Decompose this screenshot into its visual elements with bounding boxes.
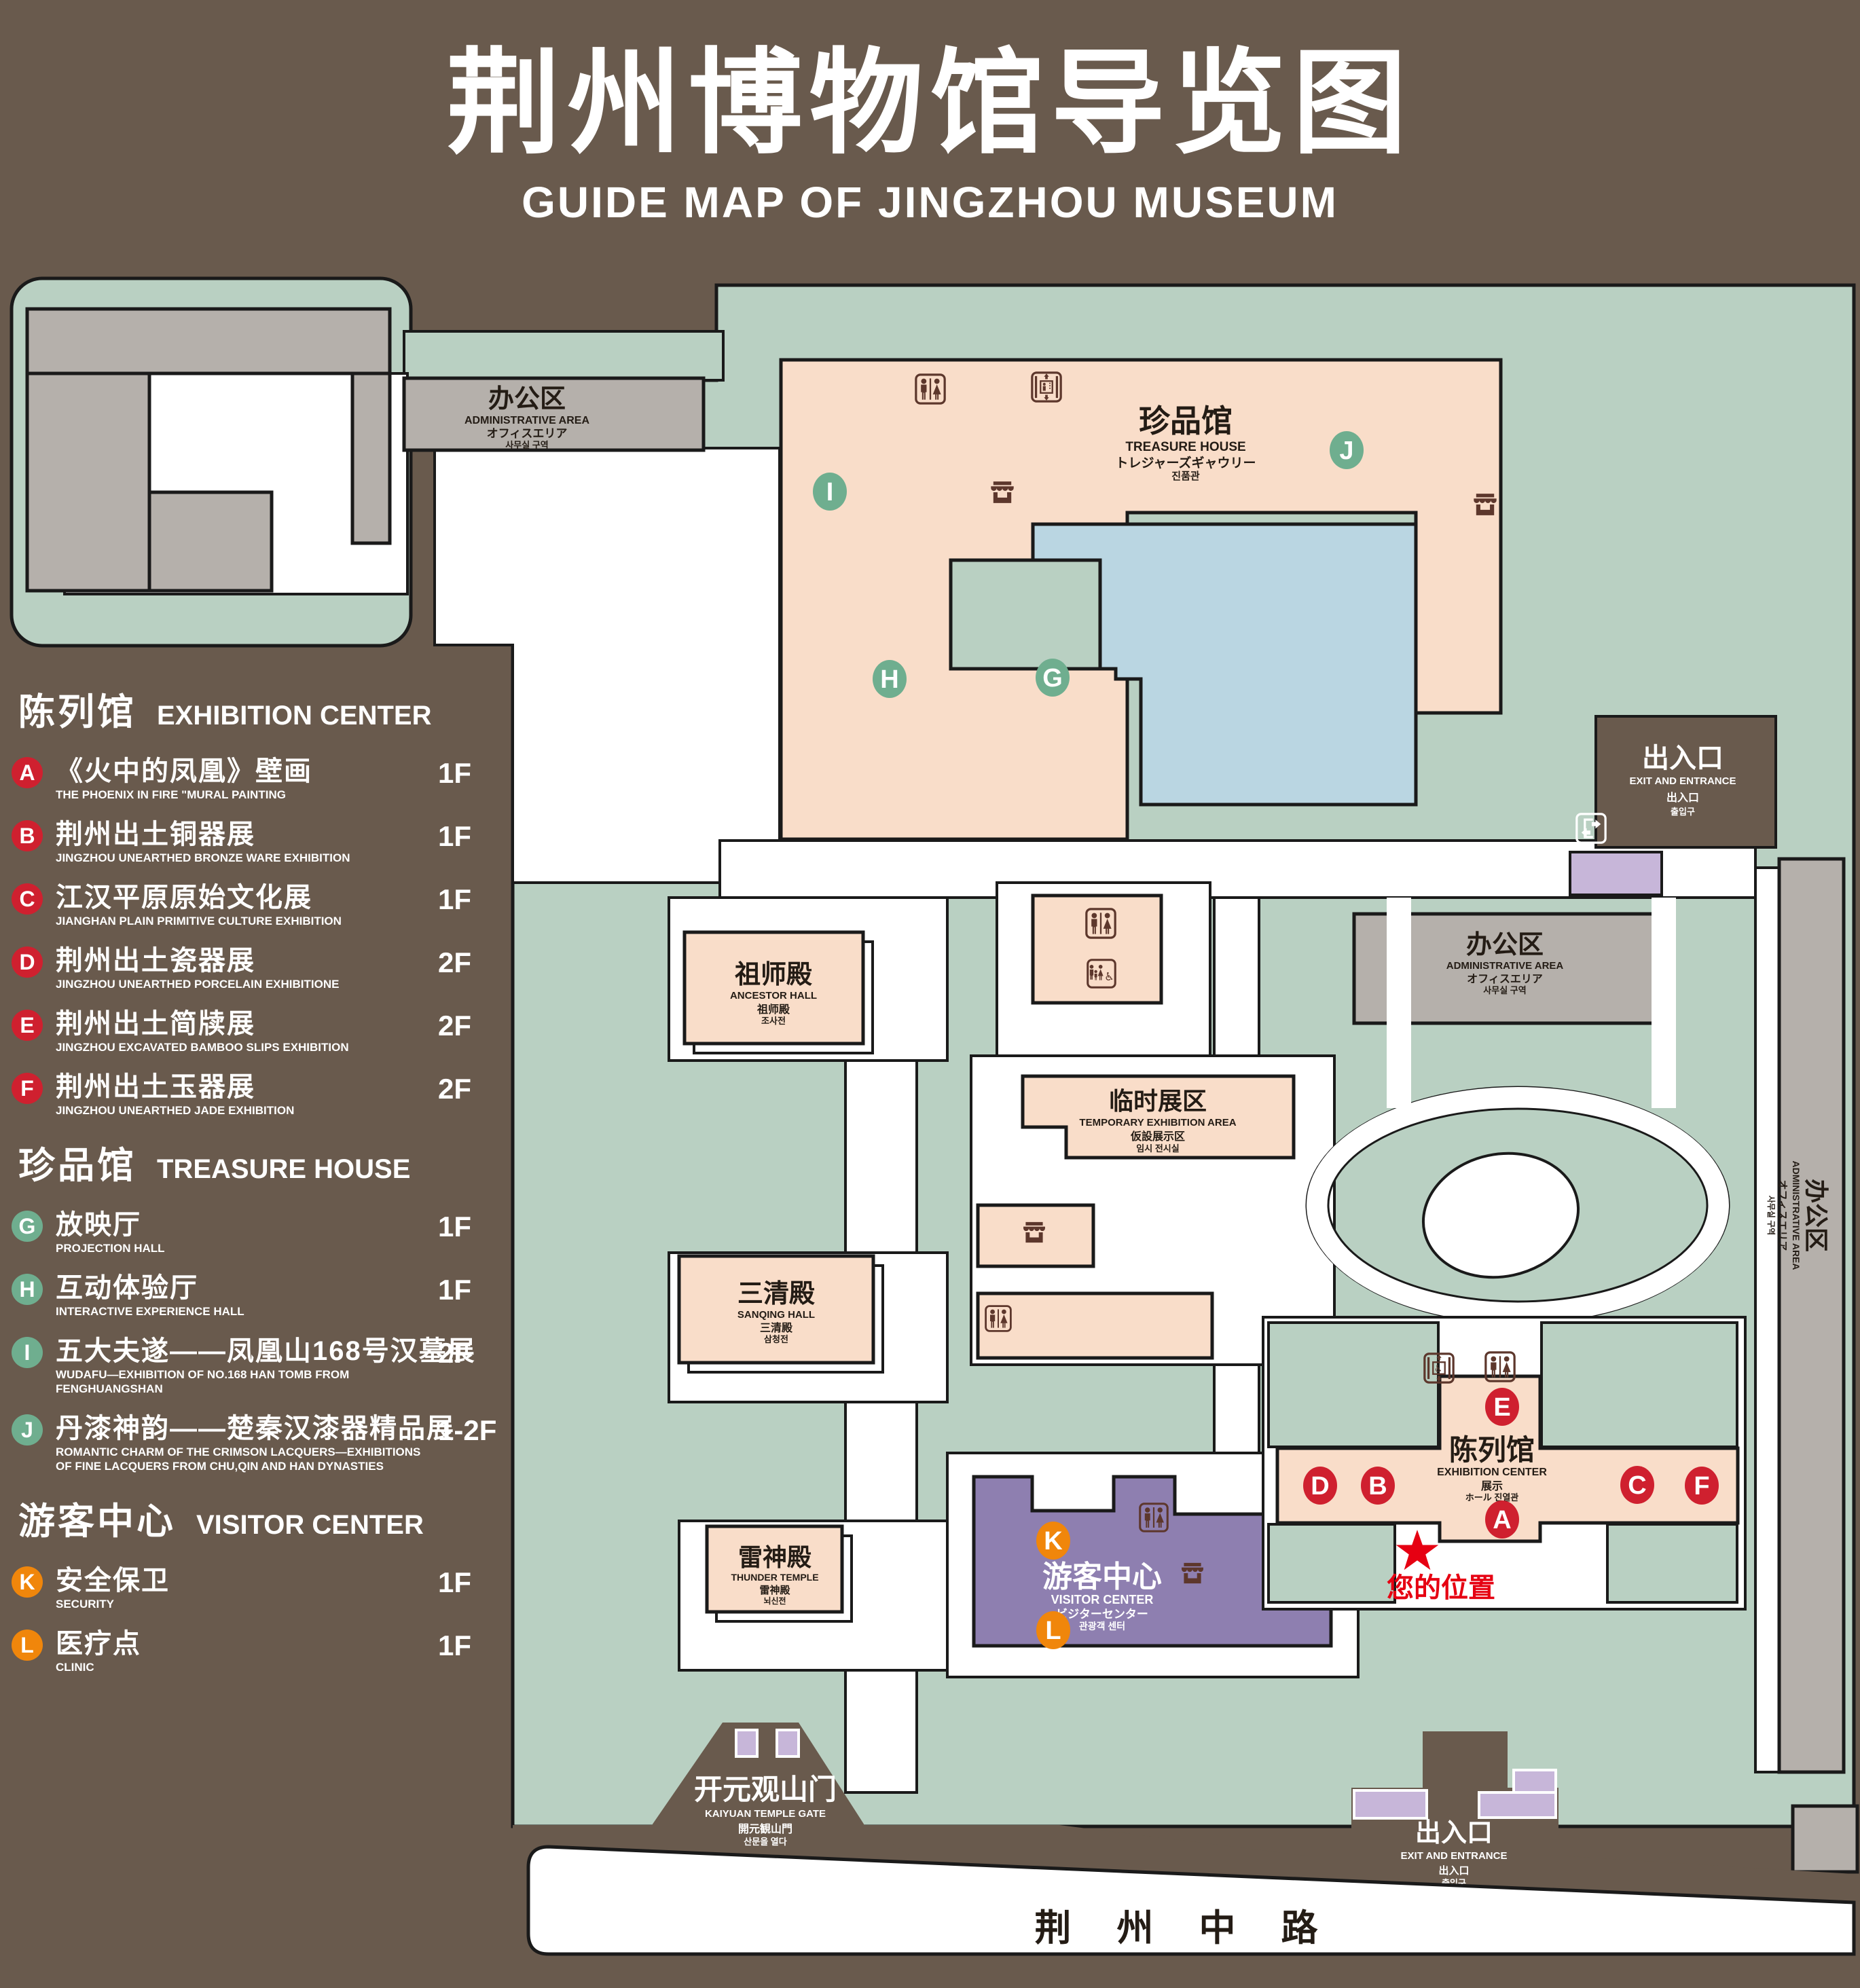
exhibition-label-en: EXHIBITION CENTER (1437, 1467, 1547, 1478)
your-location-label: 您的位置 (1387, 1573, 1495, 1603)
item-title-en: JINGZHOU EXCAVATED BAMBOO SLIPS EXHIBITI… (56, 1040, 422, 1054)
legend-item-A: A《火中的凤凰》壁画THE PHOENIX IN FIRE "MURAL PAI… (0, 756, 508, 802)
treasure-house-label-kr: 진품관 (1171, 471, 1200, 482)
item-floor: 1F (438, 1211, 471, 1243)
item-title-en: INTERACTIVE EXPERIENCE HALL (56, 1304, 422, 1319)
item-title-en: JINGZHOU UNEARTHED JADE EXHIBITION (56, 1103, 422, 1118)
map-marker-E: E (1485, 1388, 1519, 1426)
svg-text:D: D (1311, 1472, 1329, 1501)
sanqing-label-en: SANQING HALL (737, 1309, 815, 1321)
ancestor-hall-label-kr: 조사전 (761, 1016, 786, 1026)
temporary-exhibition-label-kr: 임시 전시실 (1136, 1143, 1179, 1154)
east-exit-label-jp: 出入口 (1666, 791, 1699, 804)
legend-item-C: C江汉平原原始文化展JIANGHAN PLAIN PRIMITIVE CULTU… (0, 882, 508, 928)
ancestor-hall-label-cn: 祖师殿 (735, 961, 812, 989)
item-badge-G: G (12, 1211, 43, 1242)
legend-section: 陈列馆EXHIBITION CENTERA《火中的凤凰》壁画THE PHOENI… (0, 682, 508, 1118)
item-floor: 1F (438, 1630, 471, 1662)
item-badge-H: H (12, 1274, 43, 1305)
map-marker-K: K (1036, 1522, 1070, 1560)
legend-item-J: J丹漆神韵——楚秦汉漆器精品展ROMANTIC CHARM OF THE CRI… (0, 1413, 508, 1473)
nw-admin-inner-wing (352, 373, 390, 543)
poster-title-en: GUIDE MAP OF JINGZHOU MUSEUM (0, 177, 1860, 227)
svg-text:C: C (1628, 1471, 1646, 1500)
item-title-en: THE PHOENIX IN FIRE "MURAL PAINTING (56, 788, 422, 802)
temporary-exhibition-label-en: TEMPORARY EXHIBITION AREA (1079, 1117, 1236, 1128)
mid-admin-label-cn: 办公区 (1466, 931, 1544, 959)
south-exit-label-en: EXIT AND ENTRANCE (1401, 1850, 1508, 1862)
legend-section: 珍品馆TREASURE HOUSEG放映厅PROJECTION HALL1FH互… (0, 1135, 508, 1473)
item-floor: 1F (438, 883, 471, 916)
pond-platform (951, 560, 1100, 669)
nw-admin-label-jp: オフィスエリア (487, 427, 568, 440)
legend-item-F: F荆州出土玉器展JINGZHOU UNEARTHED JADE EXHIBITI… (0, 1071, 508, 1118)
sanqing-label-jp: 三清殿 (760, 1322, 793, 1334)
thunder-label-en: THUNDER TEMPLE (731, 1572, 818, 1583)
item-floor: 1F (438, 1274, 471, 1306)
temporary-exhibition-label-cn: 临时展区 (1109, 1087, 1207, 1115)
svg-text:L: L (1045, 1617, 1061, 1645)
east-admin-label-en: ADMINISTRATIVE AREA (1791, 1161, 1802, 1270)
mid-admin-label-kr: 사무실 구역 (1483, 985, 1526, 995)
map-marker-H: H (873, 660, 907, 698)
item-floor: 2F (438, 1337, 471, 1369)
poster-header: 荆州博物馆导览图 GUIDE MAP OF JINGZHOU MUSEUM (0, 0, 1860, 227)
lower-annex-building (978, 1293, 1212, 1358)
section-title-en: TREASURE HOUSE (157, 1154, 410, 1185)
exhibition-notch-nw (1269, 1323, 1438, 1447)
treasure-house-label-en: TREASURE HOUSE (1125, 440, 1245, 454)
item-badge-A: A (12, 757, 43, 788)
poster-title-cn: 荆州博物馆导览图 (0, 11, 1860, 176)
section-title-cn: 陈列馆 (18, 682, 136, 735)
kaiyuan-gate-block-east (777, 1730, 799, 1756)
item-title-en: JINGZHOU UNEARTHED BRONZE WARE EXHIBITIO… (56, 851, 422, 865)
legend-item-K: K安全保卫SECURITY1F (0, 1565, 508, 1611)
item-title-en: PROJECTION HALL (56, 1241, 422, 1255)
svg-text:J: J (1339, 437, 1353, 465)
item-floor: 2F (438, 946, 471, 979)
garden-stub-east (1652, 898, 1676, 1108)
legend-section: 游客中心VISITOR CENTERK安全保卫SECURITY1FL医疗点CLI… (0, 1491, 508, 1674)
garden-stub-west (1387, 898, 1411, 1108)
exhibition-label-jp: 展示 (1481, 1480, 1503, 1492)
kaiyuan-gate-label-en: KAIYUAN TEMPLE GATE (705, 1808, 826, 1820)
item-title-en: CLINIC (56, 1660, 422, 1674)
svg-text:F: F (1694, 1472, 1709, 1501)
exhibition-notch-sw (1269, 1524, 1395, 1602)
svg-text:K: K (1044, 1527, 1063, 1556)
item-badge-J: J (12, 1414, 43, 1446)
legend-item-I: I五大夫遂——凤凰山168号汉墓展WUDAFU—EXHIBITION OF NO… (0, 1336, 508, 1396)
south-exit-label-cn: 出入口 (1415, 1819, 1493, 1847)
kaiyuan-gate-label-cn: 开元观山门 (694, 1773, 837, 1805)
east-exit-label-kr: 출입구 (1671, 807, 1695, 817)
treasure-house-label-cn: 珍品馆 (1139, 403, 1233, 439)
map-marker-D: D (1303, 1467, 1337, 1505)
item-title-en: JINGZHOU UNEARTHED PORCELAIN EXHIBITIONE (56, 977, 422, 991)
item-badge-F: F (12, 1073, 43, 1104)
east-exit-label-cn: 出入口 (1642, 743, 1724, 773)
east-side-path (1755, 868, 1779, 1772)
section-header: 珍品馆TREASURE HOUSE (18, 1135, 508, 1189)
east-exit-gatehouse (1570, 852, 1662, 895)
item-badge-E: E (12, 1010, 43, 1041)
item-floor: 2F (438, 1073, 471, 1105)
map-marker-L: L (1036, 1611, 1070, 1649)
item-floor: 1F (438, 820, 471, 853)
south-exit-area-upper (1423, 1731, 1508, 1792)
axis-path-1 (845, 1061, 917, 1253)
map-marker-B: B (1361, 1467, 1395, 1505)
exhibition-notch-se (1607, 1524, 1737, 1602)
item-badge-K: K (12, 1566, 43, 1598)
svg-text:B: B (1368, 1472, 1387, 1501)
sanqing-label-cn: 三清殿 (737, 1280, 815, 1308)
item-title-en: ROMANTIC CHARM OF THE CRIMSON LACQUERS—E… (56, 1445, 422, 1473)
south-exit-block-small (1514, 1770, 1556, 1792)
temporary-exhibition-label-jp: 仮設展示区 (1130, 1130, 1185, 1143)
svg-text:A: A (1493, 1506, 1511, 1534)
thunder-label-cn: 雷神殿 (738, 1543, 812, 1571)
axis-path-3 (845, 1670, 917, 1792)
south-exit-block-west (1354, 1790, 1427, 1818)
nw-admin-bottom-arm (149, 492, 272, 591)
grounds-connector (404, 331, 723, 380)
item-title-en: WUDAFU—EXHIBITION OF NO.168 HAN TOMB FRO… (56, 1367, 422, 1396)
visitor-center-label-en: VISITOR CENTER (1051, 1593, 1154, 1606)
east-admin-label-cn: 办公区 (1802, 1179, 1830, 1252)
nw-admin-label-cn: 办公区 (488, 385, 566, 413)
east-admin-label-kr: 사무실 구역 (1766, 1196, 1776, 1236)
kaiyuan-gate-block-west (736, 1730, 757, 1756)
mid-admin-label-jp: オフィスエリア (1467, 973, 1543, 985)
svg-text:H: H (880, 665, 898, 694)
item-title-en: SECURITY (56, 1597, 422, 1611)
svg-text:E: E (1493, 1393, 1510, 1422)
svg-text:G: G (1042, 664, 1063, 693)
section-title-en: EXHIBITION CENTER (157, 701, 431, 731)
legend-item-H: H互动体验厅INTERACTIVE EXPERIENCE HALL1F (0, 1272, 508, 1319)
map-marker-G: G (1036, 659, 1070, 697)
item-badge-D: D (12, 946, 43, 978)
accessible-elevator-icon (1425, 1354, 1453, 1382)
item-floor: 1F (438, 757, 471, 790)
map-marker-J: J (1330, 431, 1364, 469)
item-badge-I: I (12, 1337, 43, 1368)
east-admin-label-jp: オフィスエリア (1776, 1180, 1788, 1251)
item-title-en: JIANGHAN PLAIN PRIMITIVE CULTURE EXHIBIT… (56, 914, 422, 928)
south-exit-label-jp: 出入口 (1438, 1864, 1469, 1877)
sidebar-sections: 陈列馆EXHIBITION CENTERA《火中的凤凰》壁画THE PHOENI… (0, 682, 508, 1674)
road-label: 荆 州 中 路 (1034, 1908, 1335, 1949)
nw-admin-left-wing (27, 373, 149, 591)
legend-item-B: B荆州出土铜器展JINGZHOU UNEARTHED BRONZE WARE E… (0, 819, 508, 865)
legend-item-D: D荆州出土瓷器展JINGZHOU UNEARTHED PORCELAIN EXH… (0, 945, 508, 991)
legend-item-L: L医疗点CLINIC1F (0, 1628, 508, 1674)
axis-path-2 (845, 1402, 917, 1521)
map-marker-I: I (813, 473, 847, 511)
thunder-label-kr: 뇌신전 (763, 1596, 786, 1606)
ancestor-hall-label-jp: 祖师殿 (756, 1003, 790, 1016)
section-title-cn: 珍品馆 (18, 1135, 136, 1189)
item-floor: 2F (438, 1010, 471, 1042)
exhibition-label-kr: ホール 진열관 (1465, 1492, 1519, 1503)
kaiyuan-gate-label-kr: 산문을 열다 (744, 1837, 786, 1847)
store-annex-building (978, 1205, 1093, 1266)
exhibition-label-cn: 陈列馆 (1449, 1434, 1535, 1466)
legend-sidebar: 陈列馆EXHIBITION CENTERA《火中的凤凰》壁画THE PHOENI… (0, 664, 508, 1691)
nw-admin-label-en: ADMINISTRATIVE AREA (464, 415, 589, 426)
mid-admin-label-en: ADMINISTRATIVE AREA (1446, 960, 1564, 972)
thunder-label-jp: 雷神殿 (759, 1584, 790, 1596)
visitor-center-label-cn: 游客中心 (1042, 1560, 1162, 1594)
south-exit-block-east (1479, 1792, 1556, 1818)
nw-admin-label-kr: 사무실 구역 (505, 440, 548, 450)
svg-text:I: I (826, 478, 834, 507)
item-badge-L: L (12, 1630, 43, 1661)
section-header: 游客中心VISITOR CENTER (18, 1491, 508, 1545)
east-admin-foot (1793, 1806, 1857, 1872)
map-marker-A: A (1485, 1501, 1519, 1539)
nw-admin-top-bar (27, 309, 390, 373)
map-marker-C: C (1620, 1466, 1654, 1504)
guide-map-poster: ♿ ♿ (0, 0, 1860, 1988)
item-floor: 1F (438, 1566, 471, 1599)
legend-item-E: E荆州出土简牍展JINGZHOU EXCAVATED BAMBOO SLIPS … (0, 1008, 508, 1054)
ancestor-hall-label-en: ANCESTOR HALL (730, 990, 817, 1001)
east-exit-label-en: EXIT AND ENTRANCE (1630, 775, 1736, 787)
sanqing-label-kr: 삼청전 (764, 1334, 788, 1344)
map-marker-F: F (1685, 1467, 1719, 1505)
visitor-center-label-jp: ビジターセンター (1056, 1608, 1148, 1621)
section-title-cn: 游客中心 (18, 1491, 176, 1545)
exhibition-notch-ne (1542, 1323, 1737, 1447)
visitor-center-label-kr: 관광객 센터 (1079, 1621, 1125, 1632)
item-floor: 1-2F (438, 1414, 496, 1447)
legend-item-G: G放映厅PROJECTION HALL1F (0, 1209, 508, 1255)
kaiyuan-gate-label-jp: 開元観山門 (738, 1822, 792, 1835)
section-header: 陈列馆EXHIBITION CENTER (18, 682, 508, 735)
east-admin-tower (1779, 859, 1844, 1772)
item-badge-B: B (12, 820, 43, 851)
treasure-house-label-jp: トレジャーズギャウリー (1115, 455, 1256, 471)
item-badge-C: C (12, 883, 43, 915)
section-title-en: VISITOR CENTER (196, 1510, 424, 1541)
